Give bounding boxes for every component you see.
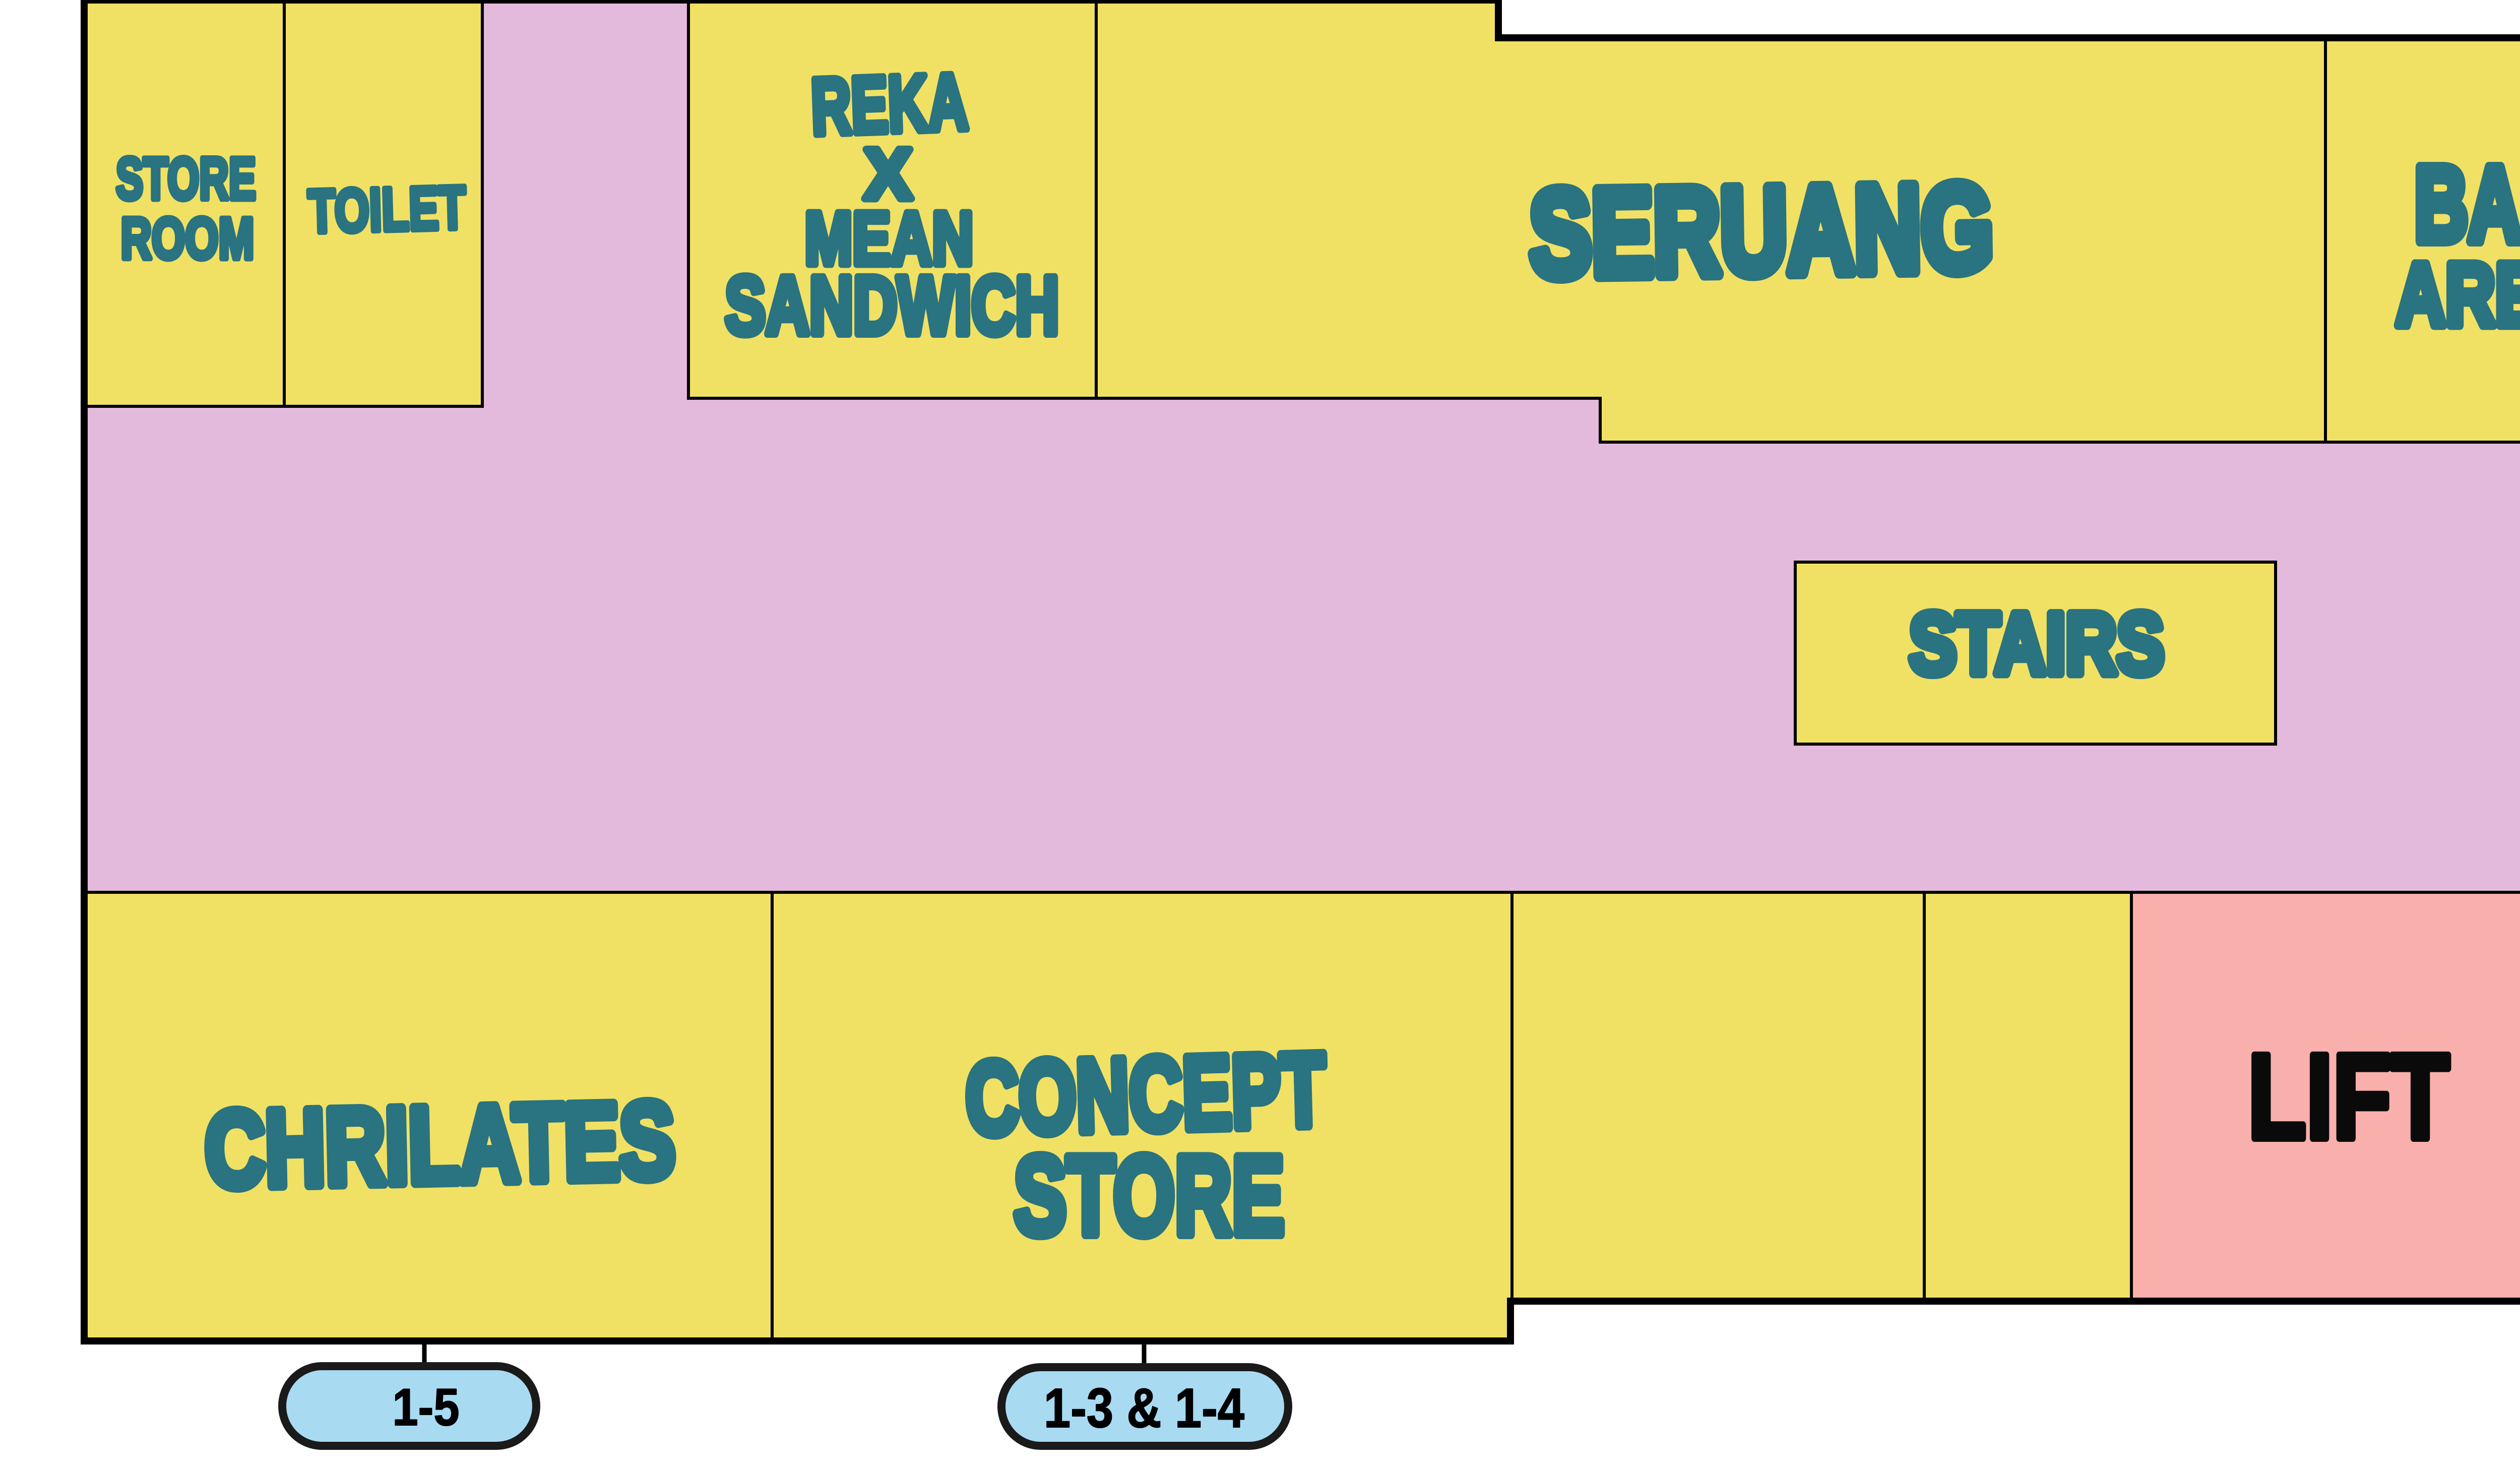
svg-text:STAIRS: STAIRS (1909, 595, 2164, 692)
svg-text:LIFT: LIFT (2248, 1029, 2449, 1164)
svg-text:1-5: 1-5 (393, 1378, 460, 1437)
svg-text:1-3 & 1-4: 1-3 & 1-4 (1044, 1377, 1244, 1439)
svg-text:STORE: STORE (1014, 1133, 1285, 1258)
svg-text:CHRILATES: CHRILATES (204, 1079, 676, 1210)
svg-text:AREA: AREA (2396, 246, 2520, 344)
svg-text:ROOM: ROOM (121, 206, 255, 271)
svg-text:SERUANG: SERUANG (1529, 158, 1994, 303)
svg-text:STORE: STORE (116, 146, 256, 212)
svg-text:TOILET: TOILET (307, 173, 467, 246)
svg-text:SANDWICH: SANDWICH (725, 259, 1059, 351)
